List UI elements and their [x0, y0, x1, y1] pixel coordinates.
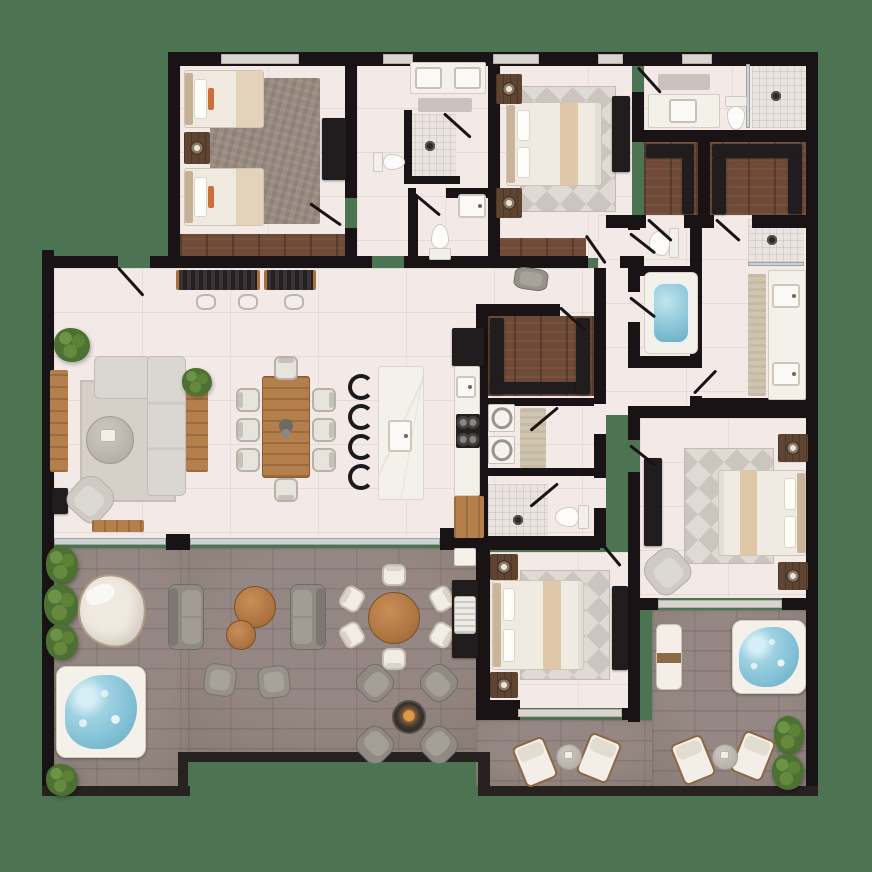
window-top-4: [598, 54, 623, 64]
wall-right: [806, 52, 818, 796]
ghost-stool-1: [196, 294, 216, 310]
wall-closets-south-c: [752, 215, 806, 228]
drain-bath1: [424, 140, 436, 152]
lounge-side-table-2: [712, 744, 738, 770]
nightstand-bedroom4-b: [490, 672, 518, 698]
wall-wc-west-b: [628, 258, 640, 292]
plant-living-corner: [54, 328, 90, 362]
dining-chair-4: [312, 388, 336, 412]
wall-hall-west-a: [594, 268, 606, 404]
wall-west: [42, 250, 54, 796]
dining-chair-1: [236, 388, 260, 412]
cooktop: [456, 414, 480, 448]
wardrobe-closet2-west: [712, 158, 726, 214]
wall-bedroom1-east-a: [345, 52, 357, 198]
bed-bedroom-2: [506, 102, 602, 186]
floor-closet-bedroom-2: [494, 238, 586, 258]
toilet-bath1: [373, 149, 405, 175]
wall-bedroom3-west-b: [628, 472, 640, 536]
toilet-bath4: [555, 501, 589, 533]
wall-bath3-south: [632, 130, 806, 142]
sink-master-2: [772, 362, 800, 386]
bar-stool-1: [348, 374, 374, 400]
plant-terrace-4: [46, 764, 78, 796]
drain-bath4: [512, 514, 524, 526]
slat-bench-2: [264, 270, 316, 290]
slat-bench-1: [176, 270, 260, 290]
pouf-2: [256, 664, 291, 699]
tv-panel-bedroom3: [644, 458, 662, 546]
hot-tub-main: [56, 666, 146, 758]
bbq-grill: [454, 596, 476, 634]
plant-terrace-3: [46, 624, 78, 660]
refrigerator: [452, 328, 484, 366]
terrace-dining-table: [368, 592, 420, 644]
ghost-stool-2: [238, 294, 258, 310]
media-console-living: [50, 370, 68, 472]
dining-chair-3: [236, 448, 260, 472]
wall-shower1-west: [404, 110, 412, 182]
window-bench: [92, 520, 144, 532]
wall-master-west-b: [690, 396, 702, 406]
wall-bedroom1-west: [168, 52, 180, 268]
nightstand-bedroom2-b: [496, 188, 522, 218]
wall-bedroom34-spine: [628, 536, 640, 722]
toilet-wc2: [426, 224, 454, 260]
wall-bedroom3-south-b: [782, 598, 806, 610]
window-top-2: [383, 54, 413, 64]
bar-stool-4: [348, 464, 374, 490]
nightstand-bedroom3-b: [778, 562, 808, 590]
wall-pantry-north-b: [598, 304, 606, 316]
tv-panel-bedroom2: [612, 96, 630, 172]
twin-bed-1: [184, 70, 264, 128]
sink-master-1: [772, 284, 800, 308]
wardrobe-pantry-south: [490, 382, 590, 394]
parapet-bottom-right: [484, 786, 818, 796]
glass-shower-master: [748, 262, 804, 266]
wall-bedroom4-south-a: [476, 708, 518, 720]
wall-wc-west-a: [628, 222, 640, 230]
wall-hall-west-b: [594, 434, 606, 478]
wardrobe-closet2-east: [788, 158, 802, 214]
wardrobe-closet2-north: [712, 144, 802, 158]
window-top-3: [493, 54, 539, 64]
wall-bedroom3-south-a: [628, 598, 658, 610]
twin-bed-2: [184, 168, 264, 226]
bbq-side-table: [454, 548, 476, 566]
drain-bath3: [770, 90, 782, 102]
wall-living-north-b: [150, 256, 372, 268]
kitchen-cabinet: [454, 496, 484, 538]
nightstand-bedroom1: [184, 132, 210, 164]
wall-bedroom4-west: [476, 548, 490, 708]
wardrobe-closet1-north: [646, 144, 694, 158]
floor-shower-bath-4: [488, 484, 548, 536]
outdoor-sofa-2: [290, 584, 326, 650]
island-sink: [388, 420, 412, 452]
bathmat-bath3: [658, 74, 710, 90]
vanity-bath3: [648, 94, 720, 128]
dining-chair-6: [312, 448, 336, 472]
bed-bedroom-4: [492, 580, 584, 670]
dining-chair-2: [236, 418, 260, 442]
wall-wc2-west: [408, 196, 418, 256]
rug-master: [748, 274, 766, 396]
toilet-bath3: [722, 96, 750, 130]
washer: [488, 404, 515, 432]
nightstand-bedroom2-a: [496, 74, 522, 104]
wall-bedroom4-north: [476, 536, 600, 550]
ghost-stool-3: [284, 294, 304, 310]
bar-stool-3: [348, 434, 374, 460]
wall-glass-pillar-1: [166, 534, 190, 550]
plant-court-1: [774, 716, 804, 754]
vanity-bath1: [410, 62, 486, 94]
bar-stool-2: [348, 404, 374, 430]
plant-terrace-2: [44, 584, 78, 626]
wall-living-north-a: [42, 256, 118, 268]
nightstand-bedroom3-a: [778, 434, 808, 462]
terrace-chair-4: [382, 648, 406, 670]
toilet-wc: [649, 223, 679, 263]
floor-plan: [0, 0, 872, 872]
tv-panel-bedroom4: [612, 586, 628, 670]
wall-pantry-north-a: [476, 304, 560, 316]
terrace-chair-1: [382, 564, 406, 586]
coffee-table: [86, 416, 134, 464]
lounge-side-table-1: [556, 744, 582, 770]
glass-wall-living-a: [54, 538, 166, 545]
bathmat-bath1: [418, 98, 472, 112]
rug-laundry: [520, 408, 546, 468]
outdoor-coffee-2: [226, 620, 256, 650]
fire-pit: [392, 700, 426, 734]
drain-master: [766, 234, 778, 246]
pouf-1: [202, 662, 238, 698]
outdoor-sofa-1: [168, 584, 204, 650]
floor-closet-bedroom-1: [180, 234, 345, 258]
dining-chair-7: [274, 356, 298, 380]
dining-chair-5: [312, 418, 336, 442]
window-top-5: [682, 54, 712, 64]
wall-bedroom4-south-b: [622, 708, 640, 720]
plant-terrace-1: [46, 546, 78, 584]
wall-laundry-bath4: [482, 468, 594, 476]
plant-court-2: [772, 754, 804, 790]
bed-bedroom-3: [718, 470, 806, 556]
dining-table: [262, 376, 310, 478]
wardrobe-bedroom1: [322, 118, 346, 180]
kitchen-sink: [456, 376, 476, 398]
window-top-1: [221, 54, 299, 64]
court-lounger: [656, 624, 682, 690]
wall-closets-south-a: [606, 215, 646, 228]
nightstand-bedroom4-a: [490, 554, 518, 580]
dryer: [488, 436, 515, 464]
bathtub: [652, 282, 690, 344]
hot-tub-court: [732, 620, 806, 694]
window-bedroom4-south: [518, 709, 622, 717]
plant-console: [182, 368, 212, 396]
wall-bedroom3-north: [628, 406, 806, 418]
terrace-main: [188, 548, 476, 752]
sink-wc2: [458, 194, 486, 218]
wall-bedroom3-west-a: [628, 418, 640, 440]
wall-closet-divider: [698, 142, 710, 215]
wardrobe-closet1-east: [682, 158, 694, 214]
dining-chair-8: [274, 478, 298, 502]
wall-shower1-south: [404, 176, 460, 184]
window-bedroom3-south: [658, 600, 782, 608]
glass-wall-living-b: [190, 538, 440, 545]
